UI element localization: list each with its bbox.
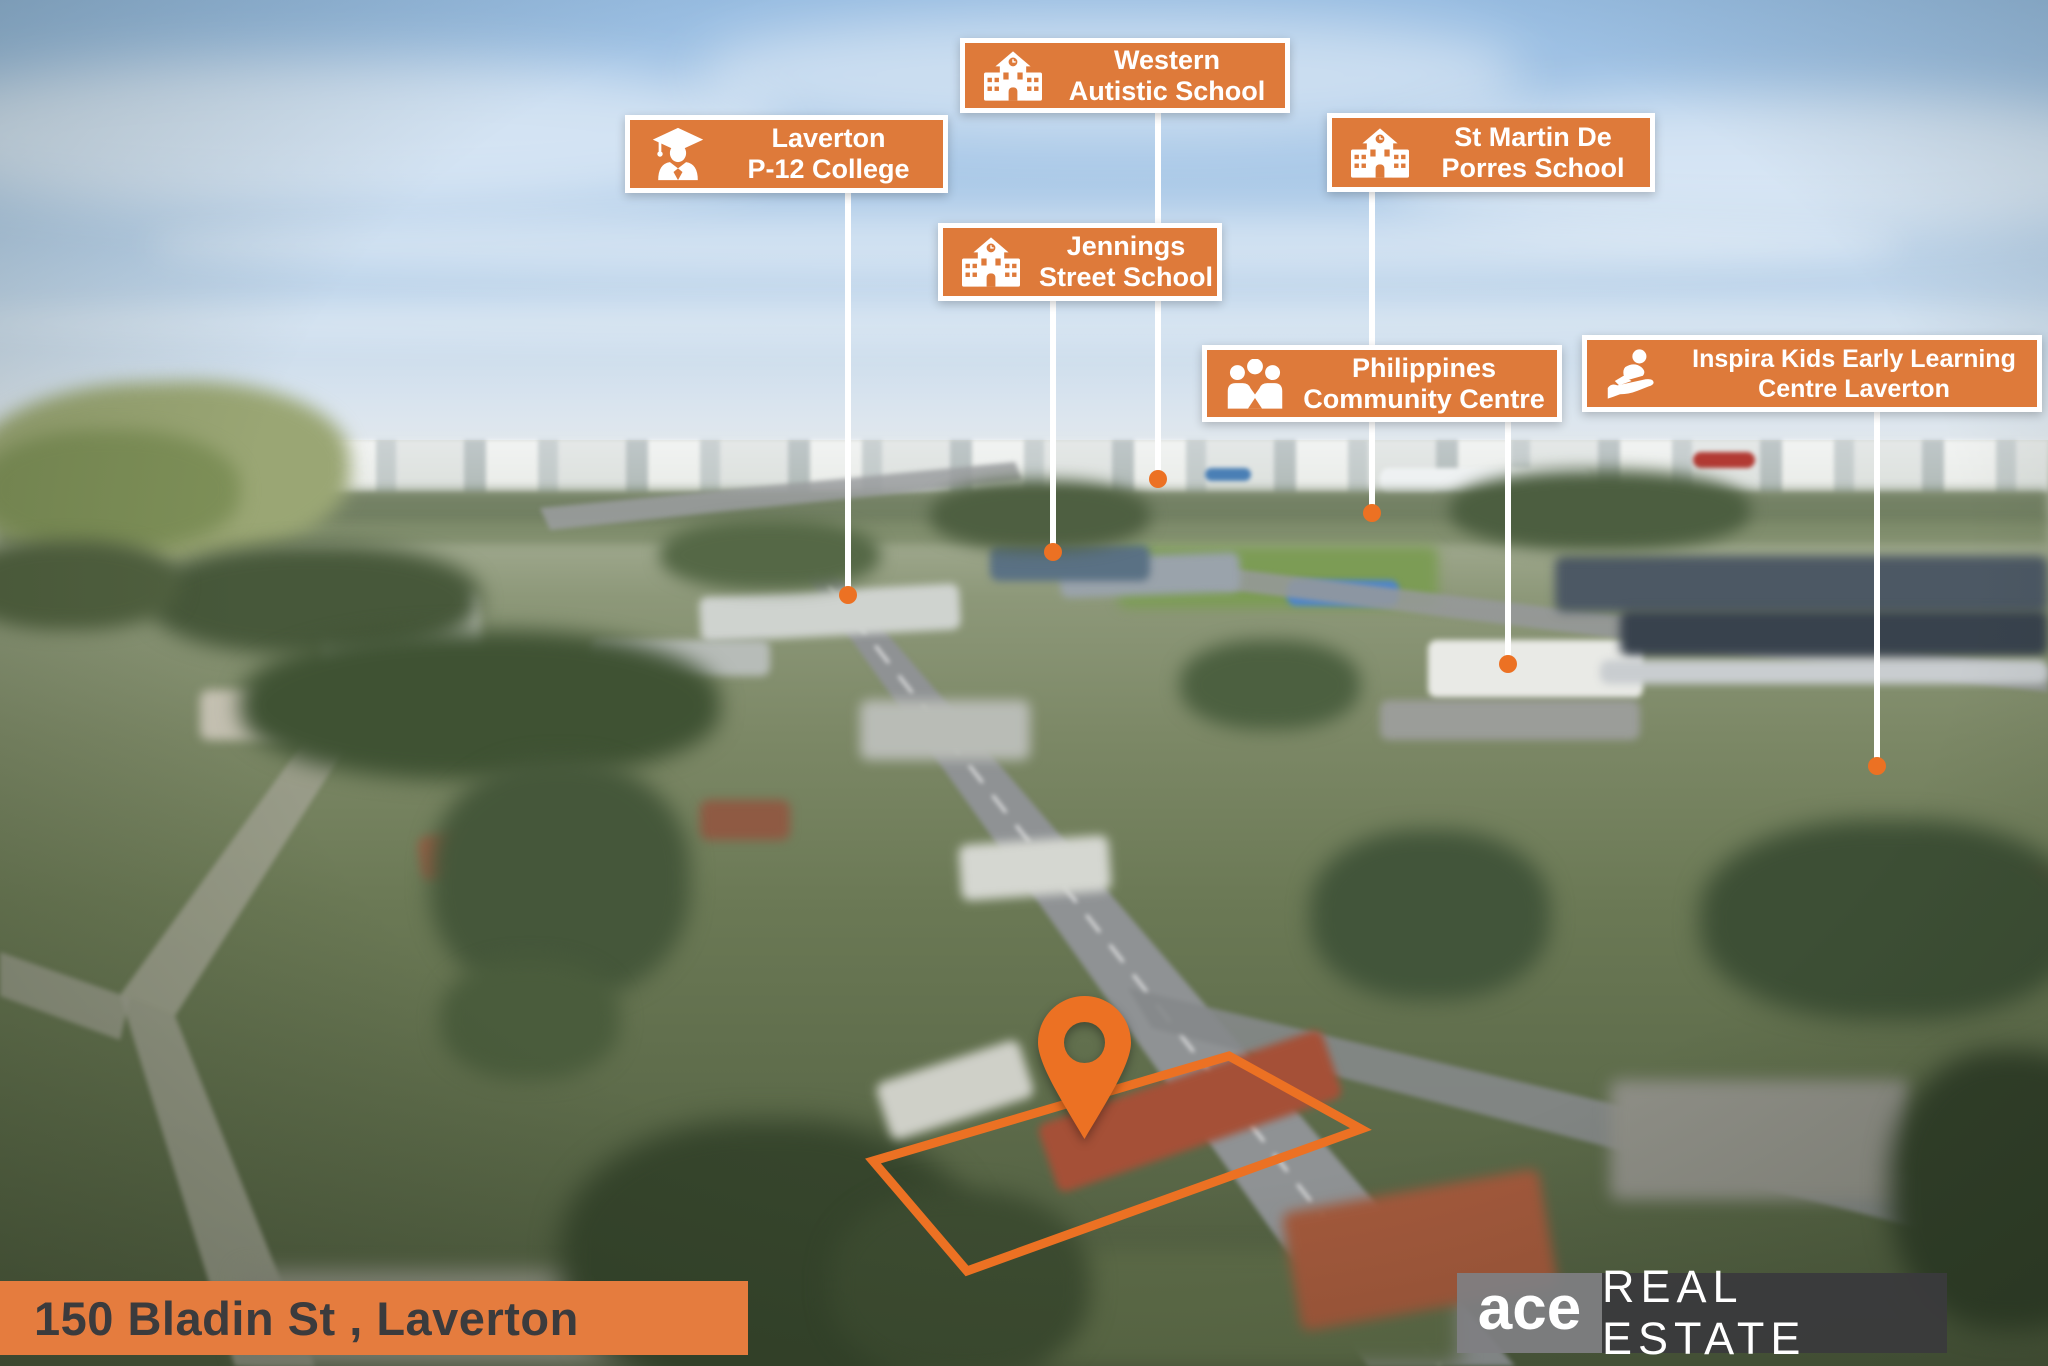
agency-logo-tagline: REAL ESTATE (1602, 1273, 1947, 1353)
callout-line1: Inspira Kids Early Learning (1692, 344, 2016, 374)
child-on-hand-icon (1587, 340, 1683, 407)
community-icon (1207, 350, 1303, 417)
address-banner: 150 Bladin St , Laverton (0, 1281, 748, 1355)
property-boundary-outline (0, 0, 2048, 1366)
school-icon (943, 228, 1039, 296)
callout-jennings-street-school: Jennings Street School (938, 223, 1222, 301)
school-icon (1332, 118, 1428, 187)
location-dot-jennings (1044, 543, 1062, 561)
location-dot-inspira (1868, 757, 1886, 775)
graduate-icon (630, 120, 726, 188)
callout-label: Western Autistic School (1061, 43, 1285, 108)
school-icon (965, 43, 1061, 108)
property-pin-icon (1038, 996, 1131, 1144)
agency-logo: ace REAL ESTATE (1457, 1273, 1947, 1353)
callout-line2: Community Centre (1303, 384, 1545, 415)
callout-label: St Martin De Porres School (1428, 118, 1650, 187)
callout-label: Philippines Community Centre (1303, 350, 1557, 417)
callout-inspira-kids: Inspira Kids Early Learning Centre Laver… (1582, 335, 2042, 412)
leader-line-jennings (1050, 298, 1056, 552)
callout-line1: Laverton (771, 123, 885, 154)
callout-laverton-p12-college: Laverton P-12 College (625, 115, 948, 193)
callout-line2: Centre Laverton (1758, 374, 1950, 404)
location-dot-st-martin (1363, 504, 1381, 522)
aerial-marketing-image: Laverton P-12 College Western Autistic S… (0, 0, 2048, 1366)
callout-label: Laverton P-12 College (726, 120, 943, 188)
callout-western-autistic-school: Western Autistic School (960, 38, 1290, 113)
callout-line1: Jennings (1067, 231, 1186, 262)
agency-logo-name: ace (1457, 1273, 1602, 1353)
leader-line-philippines (1505, 419, 1511, 664)
callout-label: Jennings Street School (1039, 228, 1225, 296)
callout-line2: Autistic School (1069, 76, 1266, 107)
location-dot-western-autistic (1149, 470, 1167, 488)
location-dot-laverton-p12 (839, 586, 857, 604)
callout-philippines-community-centre: Philippines Community Centre (1202, 345, 1562, 422)
location-dot-philippines (1499, 655, 1517, 673)
callout-line2: P-12 College (747, 154, 909, 185)
address-text: 150 Bladin St , Laverton (34, 1291, 579, 1346)
callout-st-martin-de-porres-school: St Martin De Porres School (1327, 113, 1655, 192)
callout-line2: Street School (1039, 262, 1213, 293)
leader-line-laverton-p12 (845, 190, 851, 595)
callout-line2: Porres School (1441, 153, 1624, 184)
leader-line-inspira (1874, 409, 1880, 766)
callout-line1: St Martin De (1454, 122, 1612, 153)
callout-line1: Philippines (1352, 353, 1496, 384)
callout-label: Inspira Kids Early Learning Centre Laver… (1683, 340, 2037, 407)
callout-line1: Western (1114, 45, 1220, 76)
